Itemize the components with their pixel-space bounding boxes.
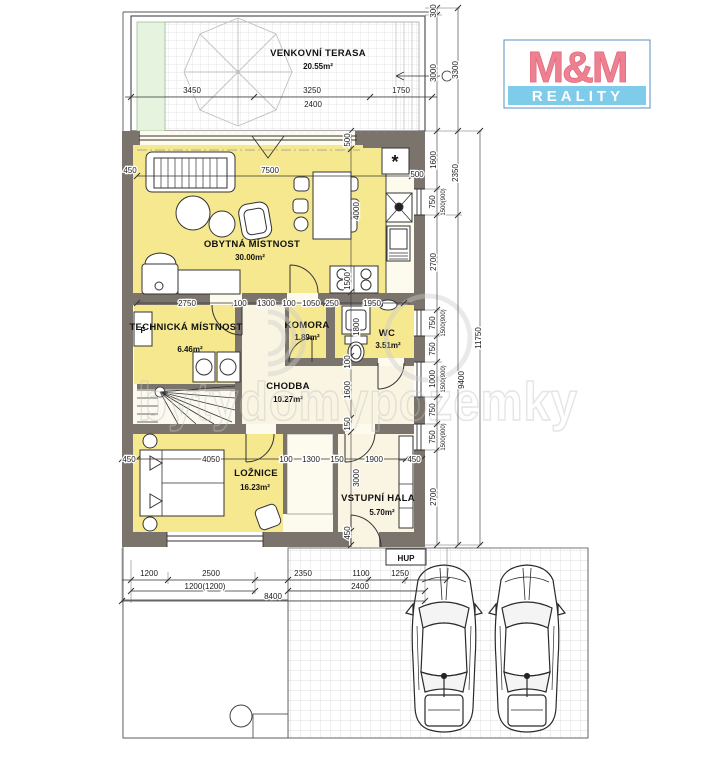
bedroom-area: 16.23m² xyxy=(240,483,270,492)
dim: 3000 xyxy=(352,469,361,487)
dim: 1500(900) xyxy=(441,188,447,215)
dim: 2350 xyxy=(294,569,312,578)
dim: 8400 xyxy=(264,592,282,601)
dim: 150 xyxy=(343,417,352,431)
dim: 2500 xyxy=(202,569,220,578)
logo-mm-text: M&M xyxy=(527,43,626,92)
dim: 300 xyxy=(429,4,438,18)
dim: 1900 xyxy=(365,455,383,464)
dim: 3000 xyxy=(429,64,438,82)
entry-hall-label: VSTUPNÍ HALA xyxy=(341,493,415,504)
logo-reality-text: REALITY xyxy=(532,88,624,105)
dim: 500 xyxy=(410,170,424,179)
car-icon xyxy=(489,565,565,732)
technical-label: TECHNICKÁ MÍSTNOST xyxy=(129,322,242,333)
dim: 450 xyxy=(122,455,136,464)
floor-plan-drawing: VENKOVNÍ TERASA 20.55m² xyxy=(0,0,717,757)
terrace-label: VENKOVNÍ TERASA xyxy=(270,48,366,59)
dim: 1500(900) xyxy=(441,365,447,392)
freezer-letter: F xyxy=(141,326,146,335)
dim: 3250 xyxy=(303,86,321,95)
boiler-symbol: * xyxy=(391,152,398,172)
nightstand-icon xyxy=(143,517,157,531)
dim: 1600 xyxy=(429,151,438,169)
garden-step xyxy=(253,714,288,738)
dim: 1750 xyxy=(392,86,410,95)
tree-icon xyxy=(230,705,252,727)
dim: 100 xyxy=(282,299,296,308)
pantry-area: 1.89m² xyxy=(294,333,320,342)
dim: 100 xyxy=(233,299,247,308)
armchair-icon xyxy=(237,201,273,242)
floor-plan-page: VENKOVNÍ TERASA 20.55m² xyxy=(0,0,717,757)
dim: 150 xyxy=(330,455,344,464)
dim: 1300 xyxy=(257,299,275,308)
dim: 1300 xyxy=(302,455,320,464)
parasol-icon xyxy=(184,18,292,126)
living-label: OBYTNÁ MÍSTNOST xyxy=(204,239,300,250)
dim: 750 xyxy=(428,430,437,444)
terrace-area: 20.55m² xyxy=(303,62,333,71)
dim: 1050 xyxy=(302,299,320,308)
sofa-icon xyxy=(146,152,235,192)
dim: 100 xyxy=(279,455,293,464)
hup-box: HUP xyxy=(386,549,426,565)
dim: 3300 xyxy=(451,61,460,79)
hup-label: HUP xyxy=(398,554,416,563)
bedroom-closet xyxy=(287,434,333,514)
dim: 100 xyxy=(343,355,352,369)
dim: 4050 xyxy=(202,455,220,464)
dim: 1000 xyxy=(428,370,437,388)
mm-reality-logo: M&M REALITY xyxy=(504,40,650,108)
hall-wardrobe-icon xyxy=(399,436,413,528)
dim: 450 xyxy=(343,526,352,540)
dim: 1200 xyxy=(140,569,158,578)
dim: 2400 xyxy=(304,100,322,109)
dim: 750 xyxy=(428,342,437,356)
dim: 1500(900) xyxy=(441,309,447,336)
dim: 2750 xyxy=(178,299,196,308)
bedroom-label: LOŽNICE xyxy=(234,467,278,479)
dining-set-icon xyxy=(293,172,359,239)
dim: 1200(1200) xyxy=(185,582,226,591)
dim: 450 xyxy=(123,166,137,175)
dim: 1100 xyxy=(352,569,370,578)
garden xyxy=(123,600,288,738)
dim: 1250 xyxy=(391,569,409,578)
dim: 750 xyxy=(428,403,437,417)
technical-area: 6.46m² xyxy=(177,345,203,354)
dim: 2700 xyxy=(429,253,438,271)
dim: 2400 xyxy=(351,582,369,591)
dim: 9400 xyxy=(457,371,466,389)
dim: 750 xyxy=(428,195,437,209)
entry-hall-area: 5.70m² xyxy=(369,508,395,517)
dim: 250 xyxy=(325,299,339,308)
dim: 1500(900) xyxy=(441,423,447,450)
dim: 500 xyxy=(343,133,352,147)
living-area: 30.00m² xyxy=(235,253,265,262)
dim: 450 xyxy=(407,455,421,464)
terrace: VENKOVNÍ TERASA 20.55m² xyxy=(131,16,425,131)
dim: 1500 xyxy=(343,272,352,290)
dim: 7500 xyxy=(261,166,279,175)
watermark-text: bytydomypozemky xyxy=(138,372,578,432)
dim: 750 xyxy=(428,316,437,330)
dim: 2350 xyxy=(451,164,460,182)
coffee-table-icon xyxy=(176,196,210,230)
dim: 4000 xyxy=(352,202,361,220)
side-table-icon xyxy=(209,211,235,237)
nightstand-icon xyxy=(143,434,157,448)
dim: 1800 xyxy=(352,318,361,336)
car-icon xyxy=(406,565,482,732)
dim: 3450 xyxy=(183,86,201,95)
dim: 11750 xyxy=(474,327,483,349)
grass-strip xyxy=(137,22,165,131)
dim: 1600 xyxy=(343,381,352,399)
dim: 2700 xyxy=(429,488,438,506)
dim: 1950 xyxy=(363,299,381,308)
